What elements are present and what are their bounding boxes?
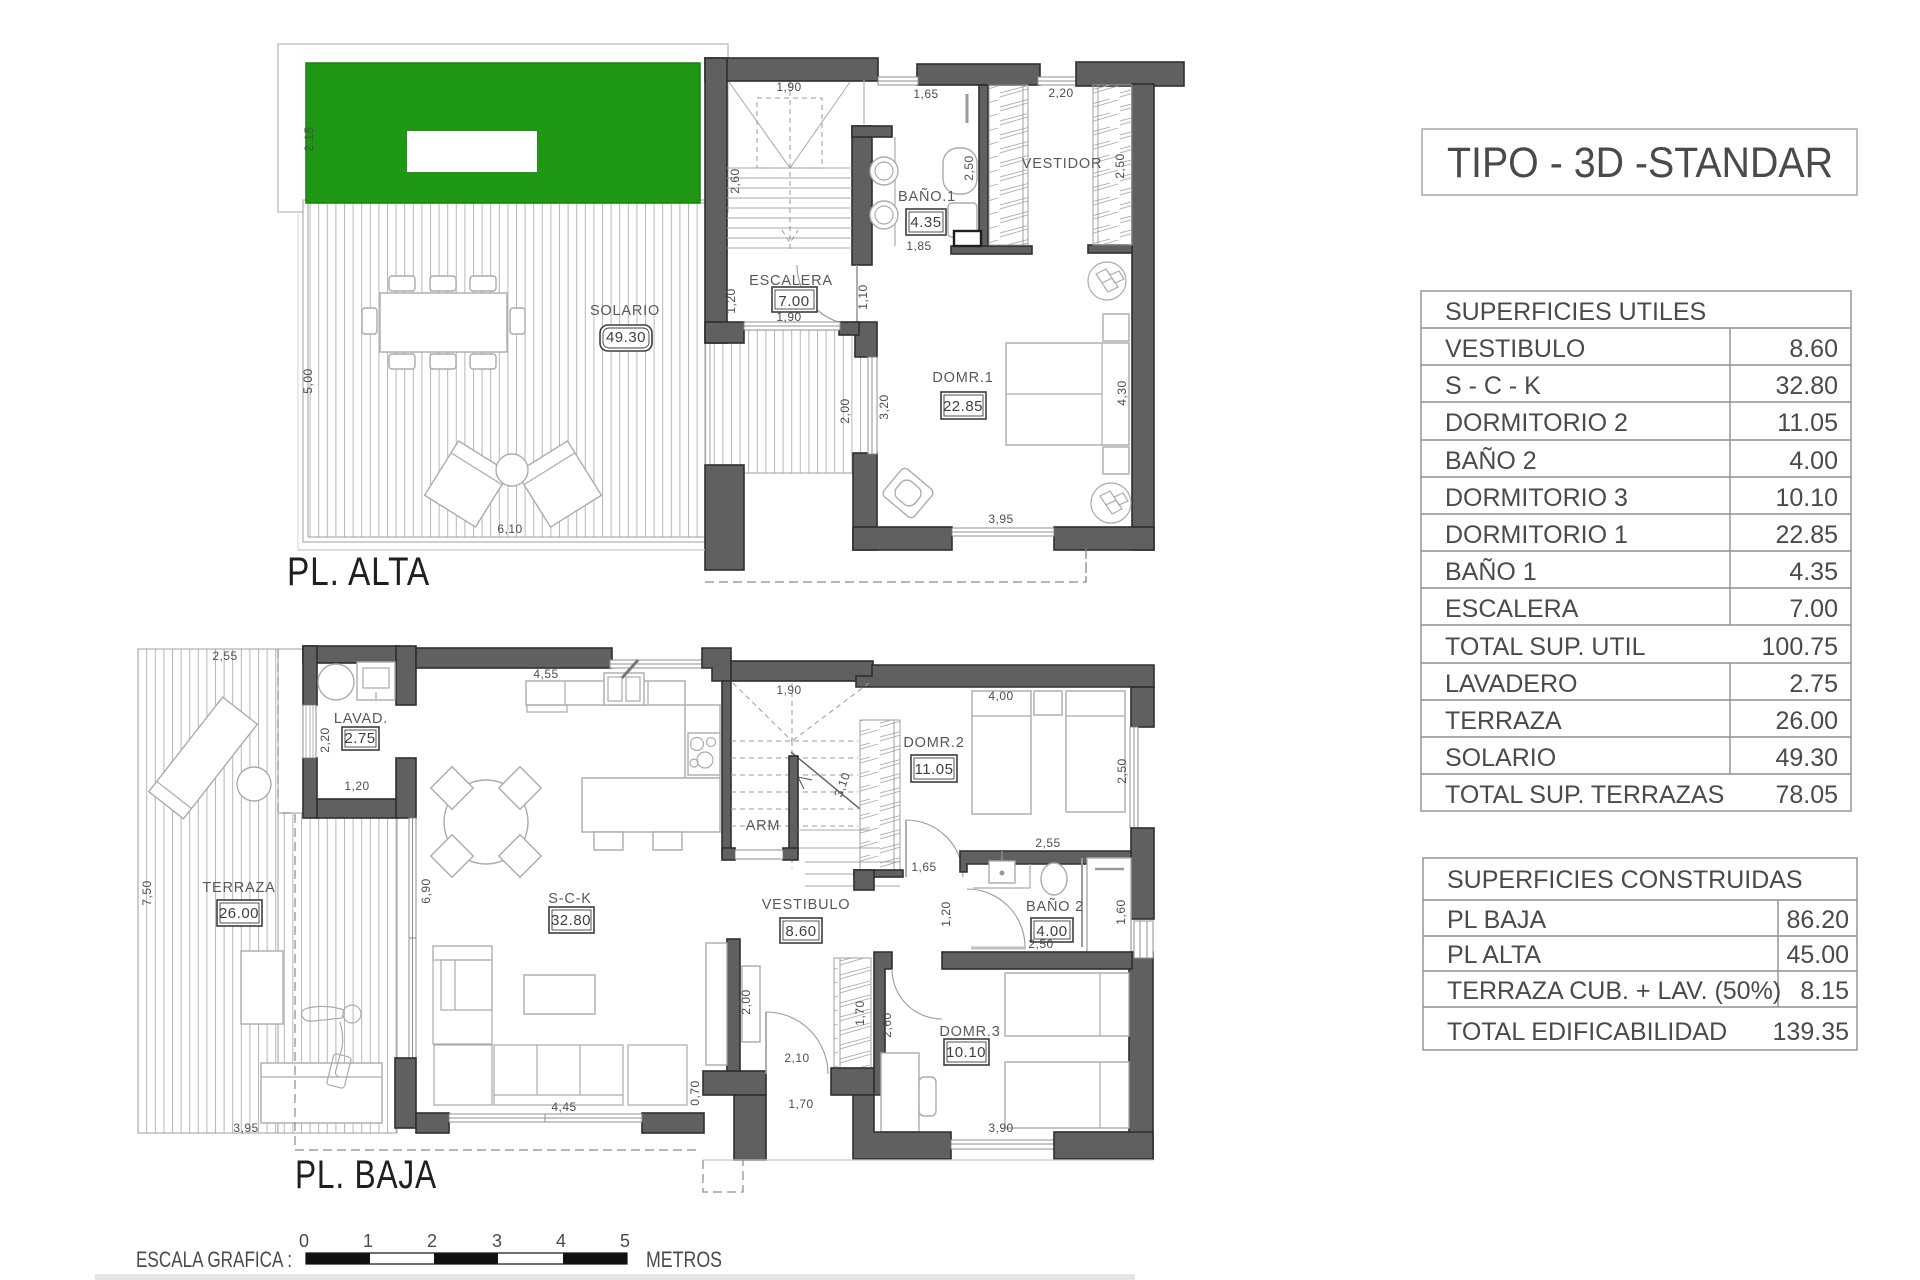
svg-text:22.85: 22.85: [943, 398, 983, 415]
svg-text:BAÑO 2: BAÑO 2: [1445, 446, 1537, 475]
svg-text:10.10: 10.10: [1775, 484, 1838, 512]
svg-text:TERRAZA: TERRAZA: [1445, 707, 1562, 735]
svg-text:1: 1: [363, 1231, 373, 1251]
svg-text:ESCALA GRAFICA :: ESCALA GRAFICA :: [136, 1247, 292, 1272]
svg-text:ARM: ARM: [746, 818, 781, 834]
svg-text:3,95: 3,95: [988, 512, 1013, 526]
svg-text:5,00: 5,00: [301, 368, 315, 393]
svg-text:PL. ALTA: PL. ALTA: [287, 550, 430, 594]
svg-text:2,60: 2,60: [880, 1012, 894, 1037]
svg-text:METROS: METROS: [646, 1247, 722, 1272]
svg-text:PL. BAJA: PL. BAJA: [295, 1153, 437, 1197]
svg-text:BAÑO 2: BAÑO 2: [1026, 898, 1084, 915]
svg-text:2.75: 2.75: [1789, 670, 1838, 698]
svg-text:1,90: 1,90: [776, 80, 801, 94]
svg-text:7.00: 7.00: [1789, 595, 1838, 623]
svg-text:VESTIBULO: VESTIBULO: [1445, 335, 1585, 363]
svg-text:2,00: 2,00: [838, 398, 852, 423]
svg-text:11.05: 11.05: [1777, 409, 1838, 437]
svg-text:32.80: 32.80: [551, 912, 591, 929]
svg-text:78.05: 78.05: [1775, 781, 1838, 809]
svg-text:SOLARIO: SOLARIO: [590, 303, 660, 319]
svg-text:11.05: 11.05: [915, 761, 954, 778]
svg-text:26.00: 26.00: [219, 905, 259, 922]
svg-text:8.15: 8.15: [1800, 977, 1849, 1005]
svg-text:1,70: 1,70: [788, 1097, 813, 1111]
svg-text:4,55: 4,55: [533, 667, 558, 681]
svg-text:4,30: 4,30: [1115, 380, 1129, 405]
svg-text:2,20: 2,20: [1048, 86, 1073, 100]
svg-text:26.00: 26.00: [1775, 707, 1838, 735]
svg-text:5: 5: [620, 1231, 630, 1251]
svg-text:1,20: 1,20: [344, 779, 369, 793]
svg-text:2,00: 2,00: [739, 989, 753, 1014]
svg-text:4.35: 4.35: [910, 214, 941, 231]
svg-text:1,90: 1,90: [776, 683, 801, 697]
svg-text:SUPERFICIES CONSTRUIDAS: SUPERFICIES CONSTRUIDAS: [1447, 866, 1803, 894]
svg-text:7.00: 7.00: [778, 293, 809, 310]
svg-text:TOTAL SUP. UTIL: TOTAL SUP. UTIL: [1445, 633, 1646, 661]
svg-text:2.15: 2.15: [302, 126, 316, 151]
svg-text:2,10: 2,10: [784, 1051, 809, 1065]
svg-text:10.10: 10.10: [946, 1044, 986, 1061]
svg-text:2,50: 2,50: [1028, 937, 1053, 951]
svg-text:BAÑO 1: BAÑO 1: [1445, 557, 1537, 586]
svg-text:TERRAZA CUB. + LAV. (50%): TERRAZA CUB. + LAV. (50%): [1447, 977, 1781, 1005]
svg-text:2,20: 2,20: [318, 727, 332, 752]
svg-text:49.30: 49.30: [1775, 744, 1838, 772]
svg-text:4,45: 4,45: [551, 1100, 576, 1114]
svg-text:32.80: 32.80: [1775, 372, 1838, 400]
svg-text:0: 0: [299, 1231, 309, 1251]
svg-text:VESTIDOR: VESTIDOR: [1022, 156, 1103, 172]
svg-text:4.35: 4.35: [1789, 558, 1838, 586]
svg-text:3: 3: [492, 1231, 502, 1251]
svg-text:2,50: 2,50: [1113, 153, 1127, 178]
svg-text:DORMITORIO 1: DORMITORIO 1: [1445, 521, 1628, 549]
svg-text:1,20: 1,20: [939, 901, 953, 926]
svg-text:DORMITORIO 2: DORMITORIO 2: [1445, 409, 1628, 437]
svg-text:1,10: 1,10: [856, 284, 870, 309]
svg-text:3,20: 3,20: [877, 394, 891, 419]
svg-text:139.35: 139.35: [1773, 1018, 1849, 1046]
svg-text:86.20: 86.20: [1786, 906, 1849, 934]
svg-text:1,85: 1,85: [906, 239, 931, 253]
svg-text:3,90: 3,90: [988, 1121, 1013, 1135]
svg-text:0,70: 0,70: [688, 1080, 702, 1105]
svg-text:BAÑO.1: BAÑO.1: [898, 188, 956, 205]
svg-text:DOMR.1: DOMR.1: [932, 370, 993, 386]
svg-text:DOMR.2: DOMR.2: [903, 735, 964, 751]
svg-text:2,50: 2,50: [962, 155, 976, 180]
svg-text:6,10: 6,10: [497, 522, 522, 536]
svg-text:2,60: 2,60: [728, 168, 742, 193]
svg-text:3,95: 3,95: [233, 1121, 258, 1135]
svg-text:PL ALTA: PL ALTA: [1447, 941, 1541, 969]
svg-text:2,55: 2,55: [212, 649, 237, 663]
svg-text:1,65: 1,65: [911, 860, 936, 874]
svg-text:2: 2: [427, 1231, 437, 1251]
svg-text:SOLARIO: SOLARIO: [1445, 744, 1556, 772]
svg-text:VESTIBULO: VESTIBULO: [762, 897, 851, 913]
svg-text:7,50: 7,50: [140, 880, 154, 905]
svg-text:TOTAL SUP. TERRAZAS: TOTAL SUP. TERRAZAS: [1445, 781, 1724, 809]
svg-text:TERRAZA: TERRAZA: [202, 880, 275, 896]
svg-text:2.75: 2.75: [344, 730, 375, 747]
svg-text:DORMITORIO 3: DORMITORIO 3: [1445, 484, 1628, 512]
svg-text:8.60: 8.60: [1789, 335, 1838, 363]
svg-text:ESCALERA: ESCALERA: [1445, 595, 1579, 623]
svg-text:45.00: 45.00: [1786, 941, 1849, 969]
svg-text:S - C - K: S - C - K: [1445, 372, 1541, 400]
svg-text:1,65: 1,65: [913, 87, 938, 101]
svg-text:LAVADERO: LAVADERO: [1445, 670, 1577, 698]
svg-text:1,20: 1,20: [724, 288, 738, 313]
svg-text:1,70: 1,70: [853, 1000, 867, 1025]
svg-text:S-C-K: S-C-K: [548, 891, 591, 907]
svg-text:4.00: 4.00: [1789, 447, 1838, 475]
svg-text:DOMR.3: DOMR.3: [939, 1024, 1000, 1040]
svg-text:LAVAD.: LAVAD.: [334, 711, 388, 727]
svg-text:22.85: 22.85: [1775, 521, 1838, 549]
svg-text:1,60: 1,60: [1114, 899, 1128, 924]
svg-text:49.30: 49.30: [606, 329, 646, 346]
svg-text:TIPO - 3D -STANDAR: TIPO - 3D -STANDAR: [1447, 139, 1833, 187]
svg-text:100.75: 100.75: [1762, 633, 1838, 661]
svg-text:2,55: 2,55: [1035, 836, 1060, 850]
svg-text:8.60: 8.60: [785, 923, 816, 940]
svg-text:4: 4: [556, 1231, 566, 1251]
svg-text:PL BAJA: PL BAJA: [1447, 906, 1546, 934]
svg-text:SUPERFICIES UTILES: SUPERFICIES UTILES: [1445, 298, 1706, 326]
svg-text:TOTAL EDIFICABILIDAD: TOTAL EDIFICABILIDAD: [1447, 1018, 1727, 1046]
svg-text:2,50: 2,50: [1115, 758, 1129, 783]
svg-text:1,90: 1,90: [776, 310, 801, 324]
svg-text:4,00: 4,00: [988, 689, 1013, 703]
svg-text:6,90: 6,90: [419, 878, 433, 903]
